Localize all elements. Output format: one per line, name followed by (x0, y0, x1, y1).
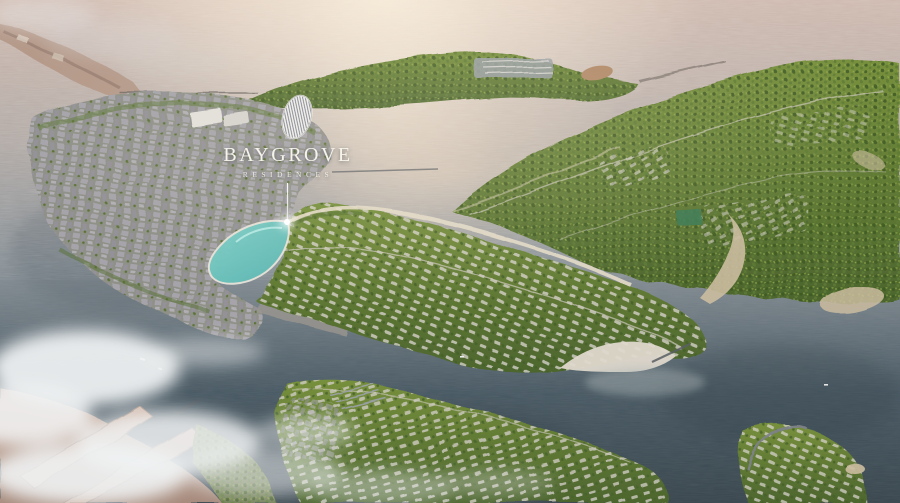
aerial-masterplan-render: BAYGROVE RESIDENCES (0, 0, 900, 503)
atmosphere-haze (0, 0, 900, 304)
scene (0, 0, 900, 503)
label-pointer-line (287, 183, 288, 221)
label-pointer-dot (284, 219, 290, 225)
